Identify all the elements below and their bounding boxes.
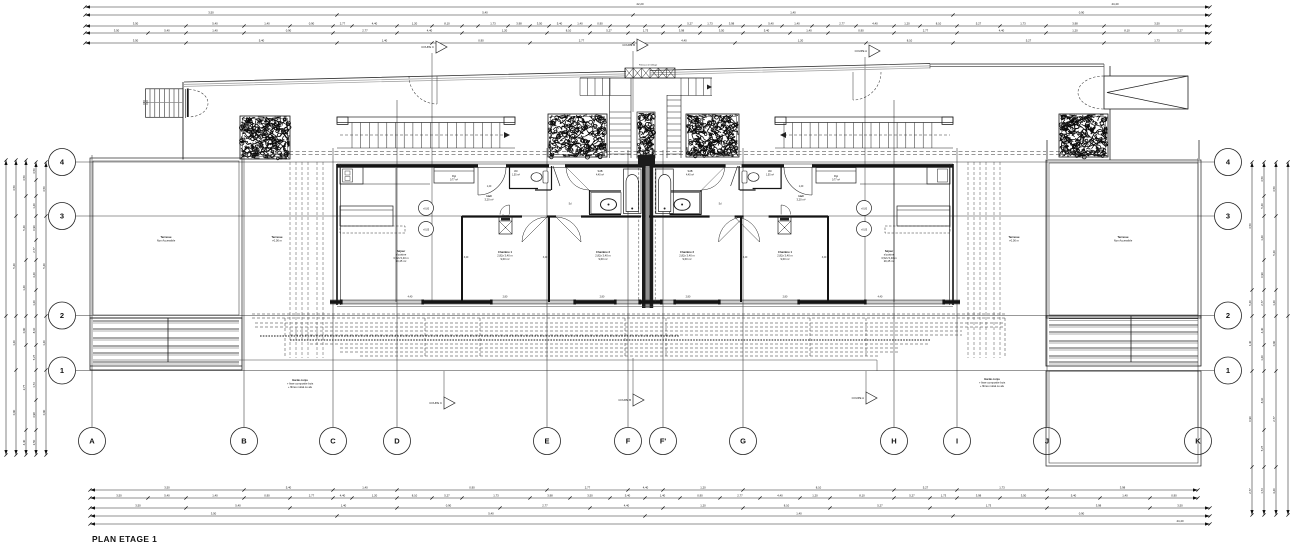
svg-text:2,77: 2,77 xyxy=(585,486,591,490)
svg-text:4,40: 4,40 xyxy=(427,29,433,33)
svg-text:1,20: 1,20 xyxy=(412,22,418,26)
svg-text:3,50: 3,50 xyxy=(1177,504,1183,508)
svg-text:0,90: 0,90 xyxy=(446,504,452,508)
svg-text:1,73: 1,73 xyxy=(493,494,499,498)
svg-text:3,50: 3,50 xyxy=(164,486,170,490)
svg-text:4,40: 4,40 xyxy=(777,494,783,498)
svg-text:SdB: SdB xyxy=(688,169,693,173)
svg-text:2,80: 2,80 xyxy=(783,296,788,299)
svg-text:1,40: 1,40 xyxy=(577,22,583,26)
svg-text:5,40: 5,40 xyxy=(259,39,265,43)
svg-text:3: 3 xyxy=(60,212,64,221)
svg-text:+0,05: +0,05 xyxy=(423,229,430,232)
svg-text:2,77: 2,77 xyxy=(579,39,585,43)
svg-text:44,40: 44,40 xyxy=(1177,519,1184,523)
svg-text:Chambre 1: Chambre 1 xyxy=(778,250,792,254)
svg-text:5,27: 5,27 xyxy=(909,494,915,498)
svg-text:3,50: 3,50 xyxy=(133,22,139,26)
svg-text:1,73: 1,73 xyxy=(941,494,947,498)
svg-text:2,77: 2,77 xyxy=(22,384,26,390)
svg-text:Terrasse: Terrasse xyxy=(1008,235,1020,239)
svg-text:9,60 m²: 9,60 m² xyxy=(598,257,607,261)
svg-text:4,40: 4,40 xyxy=(999,29,1005,33)
svg-text:3,40: 3,40 xyxy=(743,257,748,259)
svg-text:4,40: 4,40 xyxy=(1260,327,1264,333)
svg-text:A: A xyxy=(89,437,95,446)
svg-text:1,40: 1,40 xyxy=(42,340,46,346)
svg-text:3,98: 3,98 xyxy=(32,412,36,418)
svg-text:5,27: 5,27 xyxy=(32,354,36,360)
svg-text:COUPE B: COUPE B xyxy=(622,43,635,47)
svg-text:3,98: 3,98 xyxy=(516,22,522,26)
svg-text:5,27: 5,27 xyxy=(923,486,929,490)
svg-text:5,40: 5,40 xyxy=(1272,250,1276,256)
svg-text:3,50: 3,50 xyxy=(719,29,725,33)
svg-text:Hall: Hall xyxy=(487,194,492,198)
svg-text:1,40: 1,40 xyxy=(32,203,36,209)
svg-text:4,40: 4,40 xyxy=(624,504,630,508)
svg-text:5,40: 5,40 xyxy=(1260,203,1264,209)
svg-text:2,80: 2,80 xyxy=(600,296,605,299)
svg-text:1,55 m²: 1,55 m² xyxy=(512,174,520,177)
svg-text:5,27: 5,27 xyxy=(687,22,693,26)
svg-text:Rgt: Rgt xyxy=(452,174,456,178)
svg-text:22,20: 22,20 xyxy=(637,2,644,6)
svg-text:Non Accessible: Non Accessible xyxy=(157,238,176,242)
svg-text:4,40: 4,40 xyxy=(372,22,378,26)
svg-text:5,27: 5,27 xyxy=(1260,445,1264,451)
svg-text:F': F' xyxy=(660,437,667,446)
svg-text:1,73: 1,73 xyxy=(1020,22,1026,26)
svg-text:J: J xyxy=(1045,437,1049,446)
svg-text:1,20: 1,20 xyxy=(372,494,378,498)
svg-text:1: 1 xyxy=(1226,366,1230,375)
svg-text:Terrasse: Terrasse xyxy=(271,235,283,239)
svg-text:+0,00: +0,00 xyxy=(423,208,430,211)
svg-text:5,27: 5,27 xyxy=(444,494,450,498)
svg-text:8,10: 8,10 xyxy=(907,39,913,43)
svg-text:Garde corps: Garde corps xyxy=(292,378,308,382)
svg-text:Non Accessible: Non Accessible xyxy=(1114,238,1133,242)
svg-text:4,40 m²: 4,40 m² xyxy=(596,174,604,177)
svg-text:0,90: 0,90 xyxy=(22,327,26,333)
svg-text:0,90: 0,90 xyxy=(1171,494,1177,498)
svg-text:5,40: 5,40 xyxy=(768,22,774,26)
svg-text:2,80: 2,80 xyxy=(503,296,508,299)
svg-text:3,50: 3,50 xyxy=(12,185,16,191)
svg-text:4,40: 4,40 xyxy=(872,22,878,26)
svg-text:2,77: 2,77 xyxy=(737,494,743,498)
svg-text:+0,00 m: +0,00 m xyxy=(272,238,283,242)
svg-text:0,90: 0,90 xyxy=(309,22,315,26)
svg-text:3,50: 3,50 xyxy=(133,39,139,43)
svg-text:4,40: 4,40 xyxy=(32,272,36,278)
svg-text:1,40: 1,40 xyxy=(212,494,218,498)
svg-text:1,40: 1,40 xyxy=(1272,300,1276,306)
svg-text:5,40: 5,40 xyxy=(286,486,292,490)
svg-text:4,40: 4,40 xyxy=(1272,488,1276,494)
svg-text:G: G xyxy=(740,437,746,446)
svg-text:Terrasse: Terrasse xyxy=(1117,235,1129,239)
svg-text:5,40: 5,40 xyxy=(22,225,26,231)
svg-text:E: E xyxy=(544,437,549,446)
svg-text:Poteaux & treillage: Poteaux & treillage xyxy=(639,64,658,67)
svg-text:s/cuisine: s/cuisine xyxy=(884,252,895,256)
svg-text:F: F xyxy=(626,437,631,446)
svg-text:I: I xyxy=(956,437,958,446)
svg-text:4,40: 4,40 xyxy=(22,439,26,445)
svg-text:2,77: 2,77 xyxy=(32,247,36,253)
svg-text:3,50: 3,50 xyxy=(211,512,217,516)
svg-text:1,20: 1,20 xyxy=(1072,29,1078,33)
svg-text:5,40: 5,40 xyxy=(164,29,170,33)
svg-text:+0,00 m: +0,00 m xyxy=(1009,238,1020,242)
svg-text:1,40: 1,40 xyxy=(796,512,802,516)
svg-text:COUPE C: COUPE C xyxy=(421,45,434,49)
svg-text:1,40: 1,40 xyxy=(1122,494,1128,498)
svg-text:9,60 m²: 9,60 m² xyxy=(500,257,509,261)
svg-text:9,60 m²: 9,60 m² xyxy=(682,257,691,261)
svg-text:0,77 m²: 0,77 m² xyxy=(450,179,458,182)
svg-text:3,98: 3,98 xyxy=(1096,504,1102,508)
svg-text:1,73: 1,73 xyxy=(1154,39,1160,43)
svg-text:5,40: 5,40 xyxy=(482,11,488,15)
svg-text:3,50: 3,50 xyxy=(135,504,141,508)
svg-text:2,80: 2,80 xyxy=(686,296,691,299)
svg-text:5,27: 5,27 xyxy=(976,22,982,26)
svg-text:1,20: 1,20 xyxy=(700,486,706,490)
svg-text:3,98: 3,98 xyxy=(547,494,553,498)
svg-text:3,50: 3,50 xyxy=(116,494,122,498)
svg-text:3,50: 3,50 xyxy=(1154,22,1160,26)
svg-text:5,40: 5,40 xyxy=(1248,300,1252,306)
svg-text:1,73: 1,73 xyxy=(643,29,649,33)
svg-text:1,20: 1,20 xyxy=(32,300,36,306)
svg-text:1,20: 1,20 xyxy=(1260,355,1264,361)
svg-text:+ fibres métal ou alu: + fibres métal ou alu xyxy=(288,385,313,389)
svg-text:4,40: 4,40 xyxy=(643,486,649,490)
svg-text:1,40: 1,40 xyxy=(382,39,388,43)
svg-text:8,10: 8,10 xyxy=(412,494,418,498)
svg-text:Hall: Hall xyxy=(799,194,804,198)
svg-text:3,50: 3,50 xyxy=(208,11,214,15)
svg-text:0,90: 0,90 xyxy=(597,22,603,26)
svg-text:COUPE A: COUPE A xyxy=(855,49,868,53)
svg-text:1,73: 1,73 xyxy=(490,22,496,26)
svg-text:1,40: 1,40 xyxy=(794,22,800,26)
svg-text:3,50: 3,50 xyxy=(537,22,543,26)
svg-text:1,40: 1,40 xyxy=(790,11,796,15)
svg-text:3,50: 3,50 xyxy=(22,175,26,181)
svg-text:3,40: 3,40 xyxy=(543,257,548,259)
svg-text:1: 1 xyxy=(60,366,64,375)
svg-text:44,40: 44,40 xyxy=(1112,2,1119,6)
svg-text:4,40: 4,40 xyxy=(681,39,687,43)
svg-text:0,90: 0,90 xyxy=(1248,416,1252,422)
svg-text:2,77: 2,77 xyxy=(1260,300,1264,306)
svg-text:5,40: 5,40 xyxy=(1071,494,1077,498)
svg-text:20,45 m²: 20,45 m² xyxy=(884,259,895,263)
svg-text:3,98: 3,98 xyxy=(679,29,685,33)
svg-text:B: B xyxy=(241,437,247,446)
svg-text:0,90: 0,90 xyxy=(858,29,864,33)
svg-text:Garde corps: Garde corps xyxy=(984,377,1000,381)
svg-text:5,27: 5,27 xyxy=(1026,39,1032,43)
svg-text:Rgt: Rgt xyxy=(834,174,838,178)
svg-text:0,90: 0,90 xyxy=(1079,11,1085,15)
svg-text:1,73: 1,73 xyxy=(707,22,713,26)
svg-text:2,82x 3,40 m: 2,82x 3,40 m xyxy=(497,253,513,257)
svg-text:3,98: 3,98 xyxy=(729,22,735,26)
svg-text:0,90: 0,90 xyxy=(1079,512,1085,516)
svg-text:0,90: 0,90 xyxy=(286,29,292,33)
svg-text:1,40: 1,40 xyxy=(212,29,218,33)
svg-text:0,90: 0,90 xyxy=(469,486,475,490)
svg-text:5,40: 5,40 xyxy=(12,263,16,269)
svg-text:8,10: 8,10 xyxy=(936,22,942,26)
svg-text:4,40: 4,40 xyxy=(408,296,413,299)
svg-text:8,10: 8,10 xyxy=(859,494,865,498)
svg-text:Chambre 1: Chambre 1 xyxy=(498,250,512,254)
svg-text:COUPE C: COUPE C xyxy=(429,401,442,405)
svg-text:2,77: 2,77 xyxy=(1248,488,1252,494)
svg-text:1,73: 1,73 xyxy=(32,382,36,388)
svg-text:4,40: 4,40 xyxy=(878,296,883,299)
svg-text:2,77: 2,77 xyxy=(542,504,548,508)
svg-text:COUPE A: COUPE A xyxy=(852,396,865,400)
svg-text:2,77: 2,77 xyxy=(362,29,368,33)
svg-text:8,10: 8,10 xyxy=(816,486,822,490)
svg-text:3,40: 3,40 xyxy=(464,257,469,259)
svg-text:1,40: 1,40 xyxy=(264,22,270,26)
svg-text:1,20: 1,20 xyxy=(904,22,910,26)
svg-text:3,20 m²: 3,20 m² xyxy=(484,197,493,201)
svg-text:+ lisse composite bois: + lisse composite bois xyxy=(979,380,1006,384)
svg-text:s/cuisine: s/cuisine xyxy=(396,252,407,256)
svg-text:20,45 m²: 20,45 m² xyxy=(396,259,407,263)
svg-text:2: 2 xyxy=(1226,311,1230,320)
svg-text:1,40: 1,40 xyxy=(22,285,26,291)
svg-text:5,27: 5,27 xyxy=(606,29,612,33)
svg-text:1,40: 1,40 xyxy=(799,186,804,188)
svg-text:0,90: 0,90 xyxy=(697,494,703,498)
svg-text:2,77: 2,77 xyxy=(309,494,315,498)
svg-text:5,40: 5,40 xyxy=(212,22,218,26)
svg-text:2: 2 xyxy=(60,311,64,320)
svg-text:3,50: 3,50 xyxy=(114,29,120,33)
svg-text:3,50: 3,50 xyxy=(1248,223,1252,229)
svg-text:2,82x 3,40 m: 2,82x 3,40 m xyxy=(595,253,611,257)
svg-text:3,40: 3,40 xyxy=(822,257,827,259)
svg-text:0,90: 0,90 xyxy=(1272,340,1276,346)
svg-text:1,40: 1,40 xyxy=(12,340,16,346)
svg-text:SdB: SdB xyxy=(598,169,603,173)
svg-text:+0,00: +0,00 xyxy=(861,208,868,211)
svg-text:H: H xyxy=(891,437,896,446)
svg-text:3: 3 xyxy=(1226,212,1230,221)
svg-text:1,40: 1,40 xyxy=(806,29,812,33)
svg-text:3,50: 3,50 xyxy=(1021,494,1027,498)
svg-text:0,90: 0,90 xyxy=(264,494,270,498)
svg-text:3,50: 3,50 xyxy=(32,168,36,174)
svg-text:C: C xyxy=(330,437,336,446)
svg-text:3,98: 3,98 xyxy=(976,494,982,498)
svg-text:4,40 m²: 4,40 m² xyxy=(686,174,694,177)
svg-text:2,77: 2,77 xyxy=(340,22,346,26)
svg-text:0,90: 0,90 xyxy=(478,39,484,43)
svg-text:1,20: 1,20 xyxy=(798,39,804,43)
svg-text:+0,05: +0,05 xyxy=(861,229,868,232)
svg-text:8,10: 8,10 xyxy=(784,504,790,508)
svg-text:K: K xyxy=(1195,437,1201,446)
svg-text:5,40: 5,40 xyxy=(764,29,770,33)
svg-text:1,40: 1,40 xyxy=(362,486,368,490)
svg-text:5,40: 5,40 xyxy=(557,22,563,26)
svg-text:+ fibres métal ou alu: + fibres métal ou alu xyxy=(980,384,1005,388)
svg-text:8,10: 8,10 xyxy=(1124,29,1130,33)
svg-text:5,40: 5,40 xyxy=(42,263,46,269)
svg-text:0,90: 0,90 xyxy=(12,409,16,415)
svg-text:0,77 m²: 0,77 m² xyxy=(832,179,840,182)
svg-text:3,52x 5,40 m: 3,52x 5,40 m xyxy=(393,256,409,260)
svg-text:3,50: 3,50 xyxy=(1260,176,1264,182)
svg-text:1,40: 1,40 xyxy=(341,504,347,508)
svg-text:3,50: 3,50 xyxy=(1272,186,1276,192)
svg-text:1,40: 1,40 xyxy=(1248,340,1252,346)
svg-text:2,77: 2,77 xyxy=(923,29,929,33)
svg-text:0,90: 0,90 xyxy=(42,409,46,415)
svg-text:5,27: 5,27 xyxy=(1177,29,1183,33)
svg-text:5,40: 5,40 xyxy=(164,494,170,498)
svg-text:2,77: 2,77 xyxy=(1272,416,1276,422)
svg-text:Placard: Placard xyxy=(502,215,509,217)
svg-text:1,20: 1,20 xyxy=(502,29,508,33)
svg-text:3,52x 5,40 m: 3,52x 5,40 m xyxy=(881,256,897,260)
svg-text:2,77: 2,77 xyxy=(839,22,845,26)
svg-text:0,90: 0,90 xyxy=(32,225,36,231)
svg-text:3,50: 3,50 xyxy=(587,494,593,498)
svg-text:Chambre 2: Chambre 2 xyxy=(596,250,610,254)
svg-text:1,73: 1,73 xyxy=(1260,488,1264,494)
svg-text:0,90: 0,90 xyxy=(1260,272,1264,278)
svg-text:3,50: 3,50 xyxy=(42,186,46,192)
svg-text:1,40: 1,40 xyxy=(660,494,666,498)
svg-text:5,27: 5,27 xyxy=(877,504,883,508)
svg-text:5,40: 5,40 xyxy=(488,512,494,516)
svg-text:COUPE B: COUPE B xyxy=(618,398,631,402)
svg-text:8,10: 8,10 xyxy=(1260,397,1264,403)
svg-text:8,10: 8,10 xyxy=(444,22,450,26)
svg-text:3,98: 3,98 xyxy=(1072,22,1078,26)
svg-text:PLAN ETAGE 1: PLAN ETAGE 1 xyxy=(92,534,157,544)
svg-text:9,60 m²: 9,60 m² xyxy=(780,257,789,261)
svg-text:8,10: 8,10 xyxy=(32,327,36,333)
svg-text:1,20: 1,20 xyxy=(700,504,706,508)
svg-text:+ lisse composite bois: + lisse composite bois xyxy=(287,381,314,385)
svg-text:Terrasse: Terrasse xyxy=(160,235,172,239)
svg-text:1,40: 1,40 xyxy=(487,186,492,188)
svg-text:2,82x 3,40 m: 2,82x 3,40 m xyxy=(679,253,695,257)
svg-text:5,40: 5,40 xyxy=(235,504,241,508)
svg-text:1,20: 1,20 xyxy=(812,494,818,498)
svg-text:3,50: 3,50 xyxy=(32,439,36,445)
svg-text:3,98: 3,98 xyxy=(1120,486,1126,490)
svg-text:1,73: 1,73 xyxy=(986,504,992,508)
svg-text:Chambre 2: Chambre 2 xyxy=(680,250,694,254)
svg-text:4,40: 4,40 xyxy=(340,494,346,498)
svg-text:Séjour: Séjour xyxy=(397,249,405,253)
svg-text:D: D xyxy=(394,437,400,446)
svg-text:1,73: 1,73 xyxy=(999,486,1005,490)
svg-text:Séjour: Séjour xyxy=(885,249,893,253)
svg-text:3,20 m²: 3,20 m² xyxy=(796,197,805,201)
svg-text:1,40: 1,40 xyxy=(1260,235,1264,241)
svg-text:5,40: 5,40 xyxy=(625,494,631,498)
svg-text:8,10: 8,10 xyxy=(566,29,572,33)
svg-text:2,82x 3,40 m: 2,82x 3,40 m xyxy=(777,253,793,257)
svg-text:1,55 m²: 1,55 m² xyxy=(766,174,774,177)
